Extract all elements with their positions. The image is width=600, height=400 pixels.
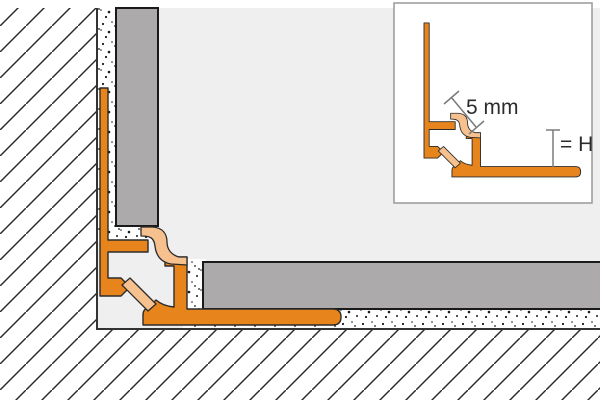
dimension-height-label: = H <box>560 133 593 156</box>
floor-tile <box>203 262 600 309</box>
dimension-width-label: 5 mm <box>466 96 519 119</box>
profile-corner-diagram: 5 mm = H <box>0 0 600 400</box>
wall-tile <box>116 8 158 226</box>
detail-inset: 5 mm = H <box>394 3 593 203</box>
